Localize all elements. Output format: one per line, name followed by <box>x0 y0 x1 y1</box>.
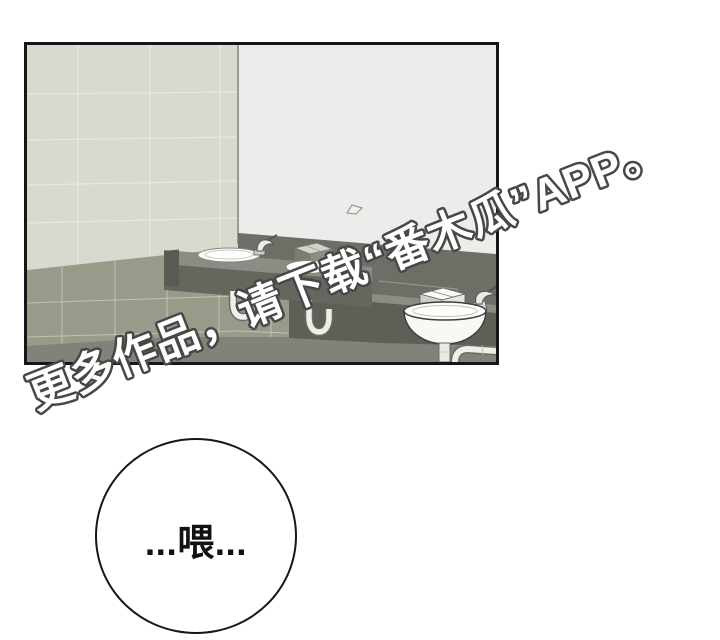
comic-panel <box>24 42 499 365</box>
sink-basin-1 <box>198 248 260 262</box>
bathroom-scene <box>27 45 496 362</box>
sink-basin-2 <box>286 261 330 274</box>
speech-bubble: ...喂... <box>95 438 297 634</box>
tiled-wall <box>27 45 238 270</box>
basin-pedestal <box>439 343 450 362</box>
speech-bubble-text: ...喂... <box>145 506 247 566</box>
counter-end-cap <box>164 250 179 288</box>
